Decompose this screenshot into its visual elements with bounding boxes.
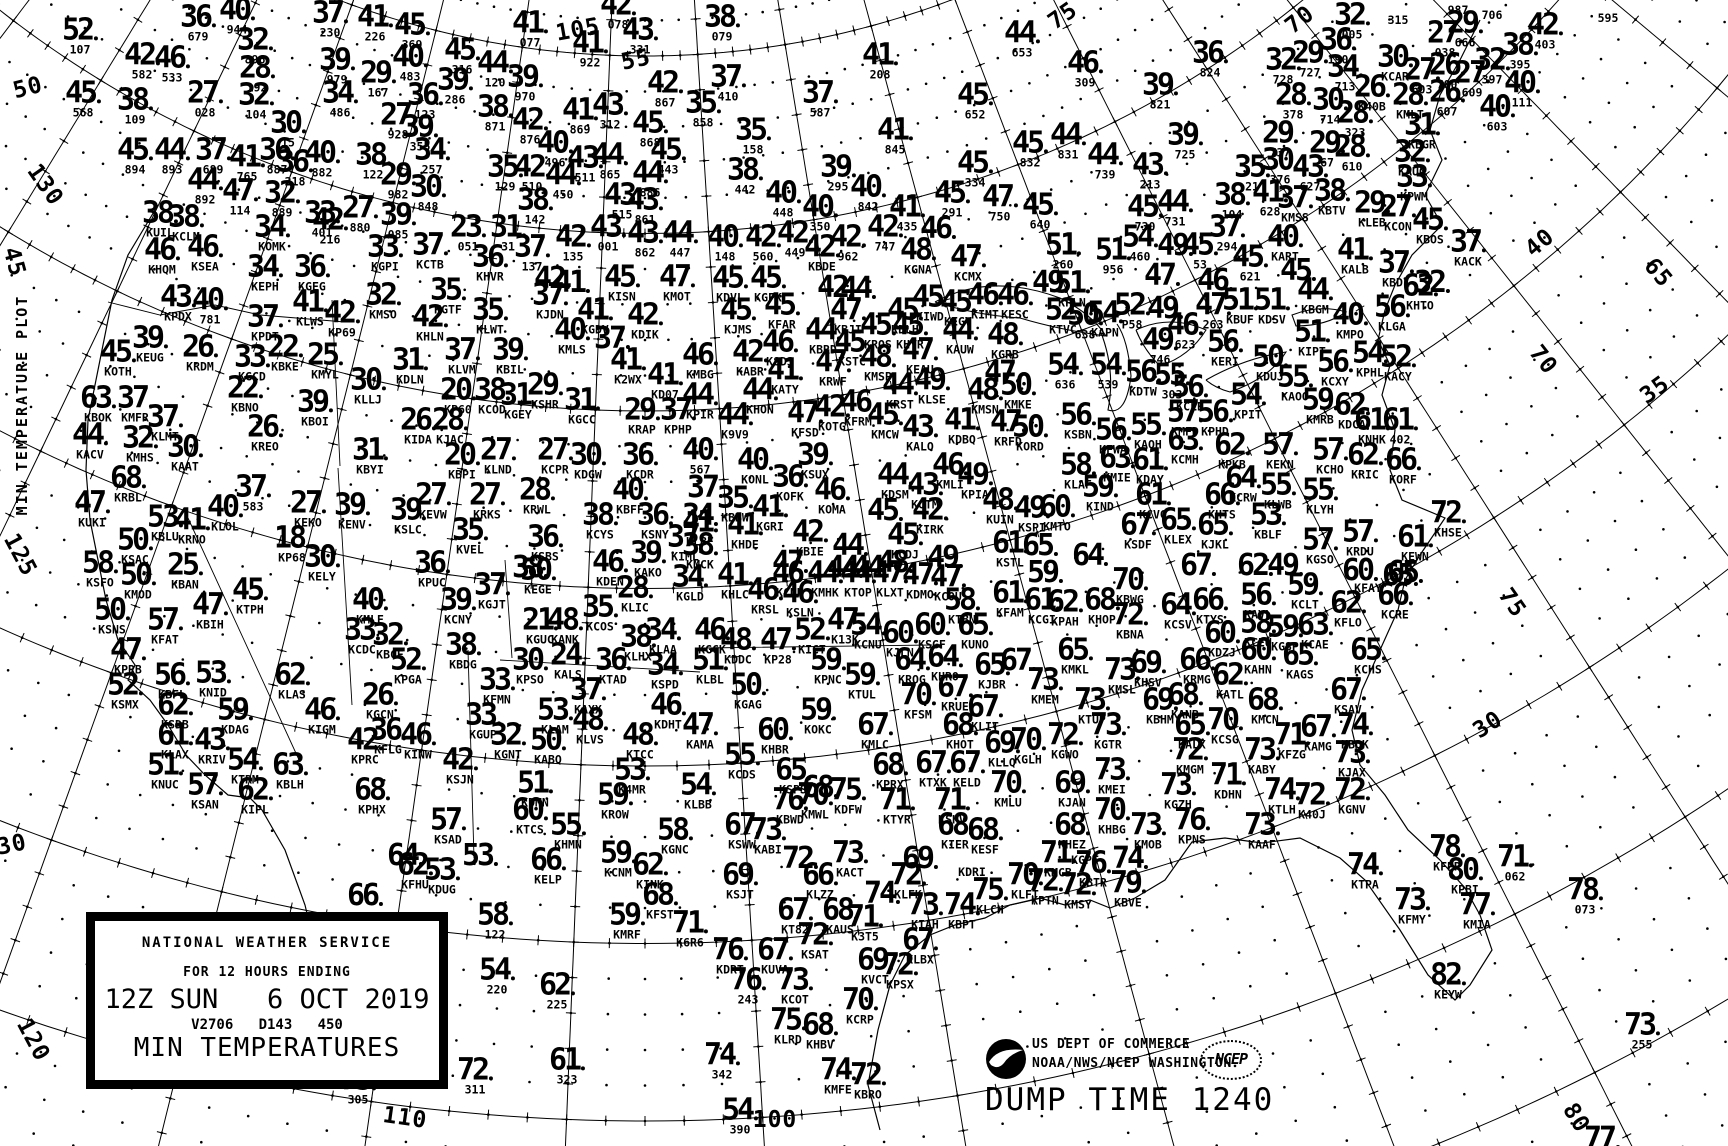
station-marker-dot — [189, 711, 193, 715]
station-marker-dot — [1086, 289, 1090, 293]
station: 38109 — [117, 88, 153, 124]
station: 58122 — [477, 903, 513, 939]
station-temp: 53 — [462, 838, 492, 873]
station: 46309 — [1067, 51, 1103, 87]
station: 62KIPL — [237, 778, 273, 814]
station-marker-dot — [1462, 519, 1466, 523]
station-id: KCDS — [724, 770, 760, 779]
station: 51KDSV — [1254, 288, 1290, 324]
station-marker-dot — [1559, 31, 1563, 35]
station-id: KPRC — [347, 755, 383, 764]
station-marker-dot — [654, 741, 658, 745]
station: 65KAGS — [1282, 643, 1318, 679]
station: 41KRNO — [174, 508, 210, 544]
station-marker-dot — [1162, 669, 1166, 673]
station-id: KTCS — [512, 825, 548, 834]
station-id: KHQM — [144, 265, 180, 274]
station-marker-dot — [862, 796, 866, 800]
station-marker-dot — [552, 576, 556, 580]
station-marker-dot — [389, 23, 393, 27]
station: 32KMSO — [365, 283, 401, 319]
station: 43KPDX — [160, 285, 196, 321]
station-marker-dot — [736, 23, 740, 27]
station-marker-dot — [522, 741, 526, 745]
station: 49KLSE — [914, 368, 950, 404]
station: 40KLOL — [207, 495, 243, 531]
station-marker-dot — [1142, 889, 1146, 893]
station: 45621 — [1232, 245, 1268, 281]
station-marker-dot — [577, 181, 581, 185]
station-id: KLGA — [1374, 322, 1410, 331]
station-marker-dot — [1286, 306, 1290, 310]
station-marker-dot — [1204, 756, 1208, 760]
station-marker-dot — [582, 661, 586, 665]
station-id: KMRB — [1302, 415, 1338, 424]
station-id: KGSO — [1302, 555, 1338, 564]
station: 45KMCW — [867, 403, 903, 439]
station: 54636 — [1047, 353, 1083, 389]
station-marker-dot — [426, 31, 430, 35]
station-marker-dot — [1144, 865, 1148, 869]
station-marker-dot — [384, 456, 388, 460]
station-marker-dot — [1362, 609, 1366, 613]
info-box-period: FOR 12 HOURS ENDING — [95, 965, 439, 980]
station-marker-dot — [1276, 831, 1280, 835]
station: 39KBOI — [297, 390, 333, 426]
station-marker-dot — [186, 681, 190, 685]
station-marker-dot — [149, 156, 153, 160]
station: 79KBVE — [1110, 871, 1146, 907]
station-marker-dot — [724, 666, 728, 670]
station-id: KDBQ — [944, 435, 980, 444]
station-id: K9V9 — [717, 430, 753, 439]
station: 26KRDM — [182, 335, 218, 371]
station: 57KSAN — [187, 773, 223, 809]
station-marker-dot — [717, 109, 721, 113]
station: 67KAMG — [1300, 715, 1336, 751]
station-marker-dot — [1386, 93, 1390, 97]
station-marker-dot — [1071, 513, 1075, 517]
station: KDRI — [958, 868, 986, 877]
station: 42747 — [867, 215, 903, 251]
station-id: KPSO — [512, 675, 548, 684]
station-marker-dot — [97, 99, 101, 103]
station-marker-dot — [756, 761, 760, 765]
station: 72KPTN — [1027, 869, 1063, 905]
station-marker-dot — [279, 273, 283, 277]
station-id: KPIR — [682, 410, 718, 419]
station-marker-dot — [1294, 451, 1298, 455]
station-marker-dot — [829, 461, 833, 465]
station-marker-dot — [944, 516, 948, 520]
noaa-logo — [985, 1038, 1027, 1084]
station-marker-dot — [989, 631, 993, 635]
station: 29167 — [360, 61, 396, 97]
station-id: KEYW — [1430, 990, 1466, 999]
station: 42KDIK — [627, 303, 663, 339]
station-id: KHVR — [472, 272, 508, 281]
station-marker-dot — [982, 263, 986, 267]
station-id: KRSL — [747, 605, 783, 614]
station-marker-dot — [271, 74, 275, 78]
station: 44KPIR — [682, 383, 718, 419]
station-marker-dot — [1199, 331, 1203, 335]
station-id: KMLS — [554, 345, 590, 354]
station: 52KSMX — [107, 673, 143, 709]
station: 315 — [1388, 16, 1409, 25]
station-id: KBRO — [850, 1090, 886, 1099]
station-marker-dot — [1164, 171, 1168, 175]
station-id: KCRP — [842, 1015, 878, 1024]
station-id: KTOP — [840, 588, 876, 597]
station-id: KEPH — [247, 282, 283, 291]
station-marker-dot — [219, 99, 223, 103]
station-id: KGNV — [1334, 805, 1370, 814]
station-id: KGCC — [564, 415, 600, 424]
station: 47KRWF — [815, 350, 851, 386]
station: 25KMYL — [307, 343, 343, 379]
station-marker-dot — [1099, 69, 1103, 73]
station: 40781 — [192, 288, 228, 324]
station-marker-dot — [462, 296, 466, 300]
station: 68KRBL — [110, 466, 146, 502]
station-marker-dot — [544, 816, 548, 820]
station-marker-dot — [1174, 91, 1178, 95]
info-box-agency: NATIONAL WEATHER SERVICE — [95, 935, 439, 951]
station-marker-dot — [797, 199, 801, 203]
station-marker-dot — [714, 551, 718, 555]
station-marker-dot — [1406, 313, 1410, 317]
station: 53KBLF — [1250, 503, 1286, 539]
station-marker-dot — [384, 606, 388, 610]
station-marker-dot — [432, 741, 436, 745]
station-id: KTPA — [1347, 880, 1383, 889]
station-marker-dot — [559, 391, 563, 395]
station-marker-dot — [1246, 201, 1250, 205]
station-id: KORD — [1012, 442, 1048, 451]
station-marker-dot — [876, 681, 880, 685]
station-id: KBDG — [445, 660, 481, 669]
station-marker-dot — [511, 976, 515, 980]
station: 30KLLJ — [350, 368, 386, 404]
station: 75KDFW — [830, 778, 866, 814]
station-marker-dot — [1044, 149, 1048, 153]
station-marker-dot — [641, 921, 645, 925]
station-marker-dot — [444, 323, 448, 327]
station-id: KORF — [1385, 475, 1421, 484]
station-marker-dot — [976, 426, 980, 430]
station: 77KMIA — [1459, 893, 1495, 929]
station-marker-dot — [1079, 741, 1083, 745]
station-marker-dot — [224, 611, 228, 615]
station: 76243 — [730, 968, 766, 1004]
station-marker-dot — [176, 256, 180, 260]
station-marker-dot — [1022, 789, 1026, 793]
station: 40KMLS — [554, 318, 590, 354]
station-marker-dot — [269, 46, 273, 50]
station-id: KEUG — [132, 353, 168, 362]
station: 70KGLH — [1010, 728, 1046, 764]
station-marker-dot — [494, 862, 498, 866]
station-marker-dot — [392, 79, 396, 83]
station: 66KCRE — [1377, 583, 1413, 619]
station: 35KLWT — [472, 298, 508, 334]
station-marker-dot — [524, 356, 528, 360]
station: 46KINW — [400, 723, 436, 759]
station-id: KSHR — [527, 400, 563, 409]
station: 44831 — [1050, 123, 1086, 159]
station-marker-dot — [374, 214, 378, 218]
station-marker-dot — [1272, 656, 1276, 660]
station-marker-dot — [1297, 66, 1301, 70]
station-marker-dot — [1326, 801, 1330, 805]
station-id: KELY — [304, 572, 340, 581]
station-marker-dot — [336, 159, 340, 163]
station-marker-dot — [646, 776, 650, 780]
station: 52KPGA — [390, 648, 426, 684]
info-box-product-title: MIN TEMPERATURES — [95, 1033, 439, 1063]
station-marker-dot — [946, 386, 950, 390]
station-marker-dot — [1369, 256, 1373, 260]
station-marker-dot — [814, 599, 818, 603]
station-marker-dot — [1036, 39, 1040, 43]
station-marker-dot — [1479, 876, 1483, 880]
station-marker-dot — [862, 243, 866, 247]
station-marker-dot — [1511, 113, 1515, 117]
station-marker-dot — [1042, 746, 1046, 750]
station-id: KGNA — [900, 265, 936, 274]
station-marker-dot — [934, 356, 938, 360]
station-id: KCNM — [600, 868, 636, 877]
station-id: KMIA — [1459, 920, 1495, 929]
station-marker-dot — [654, 36, 658, 40]
station: 55KLYH — [1302, 478, 1338, 514]
station-id: KFSM — [900, 710, 936, 719]
station-marker-dot — [339, 361, 343, 365]
station-id: KCSG — [1207, 735, 1243, 744]
station: 64KCSV — [1160, 593, 1196, 629]
station: 54KCNU — [850, 613, 886, 649]
station-id: KRDM — [182, 362, 218, 371]
station-marker-dot — [609, 316, 613, 320]
station-id: KBVE — [1110, 898, 1146, 907]
station-id: KRWL — [519, 505, 555, 514]
station-marker-dot — [752, 646, 756, 650]
station: 77 — [1584, 1127, 1620, 1146]
station: 61323 — [549, 1048, 585, 1084]
station-id: K40J — [1294, 810, 1330, 819]
station-id: KSAN — [187, 800, 223, 809]
station: 44KAUW — [942, 318, 978, 354]
station-marker-dot — [1482, 248, 1486, 252]
station-id: KMCW — [867, 430, 903, 439]
station: 45832 — [1012, 131, 1048, 167]
station-marker-dot — [1224, 606, 1228, 610]
station-id: KAUW — [942, 345, 978, 354]
station: 42962 — [830, 225, 866, 261]
station-marker-dot — [922, 881, 926, 885]
station-marker-dot — [142, 656, 146, 660]
station: 27KEVW — [415, 483, 451, 519]
station-marker-dot — [1412, 363, 1416, 367]
station-id: KHDE — [727, 540, 763, 549]
station-marker-dot — [489, 1076, 493, 1080]
station: 56KCXY — [1317, 350, 1353, 386]
station: 56KLGA — [1374, 295, 1410, 331]
station: 63KCMH — [1167, 428, 1203, 464]
station-id: KLND — [480, 465, 516, 474]
station-marker-dot — [299, 353, 303, 357]
station: 73KMEI — [1094, 758, 1130, 794]
station: 67 — [1180, 554, 1216, 578]
station-marker-dot — [959, 663, 963, 667]
station: 73KCOT — [777, 968, 813, 1004]
station-marker-dot — [829, 801, 833, 805]
station-id: KHLN — [412, 332, 448, 341]
station-id: KENV — [334, 520, 370, 529]
station: 41KLWS — [292, 290, 328, 326]
station-marker-dot — [679, 671, 683, 675]
station-marker-dot — [1086, 789, 1090, 793]
station: 44739 — [1087, 143, 1123, 179]
station: 38871 — [477, 95, 513, 131]
station-marker-dot — [1104, 562, 1108, 566]
station-id: KBYI — [352, 465, 388, 474]
station: 67KSDF — [1120, 513, 1156, 549]
station-marker-dot — [889, 731, 893, 735]
station-marker-dot — [476, 356, 480, 360]
station: 55KCDS — [724, 743, 760, 779]
station-marker-dot — [662, 559, 666, 563]
station: 41845 — [877, 118, 913, 154]
station-marker-dot — [1092, 891, 1096, 895]
station-marker-dot — [397, 301, 401, 305]
station: 74KTPA — [1347, 853, 1383, 889]
station-id: KREO — [247, 442, 283, 451]
station: 73KGTR — [1090, 713, 1126, 749]
station-id: KJBR — [974, 680, 1010, 689]
station-id: KDFW — [830, 805, 866, 814]
station: 39KCNY — [440, 588, 476, 624]
station-id: KUIN — [982, 515, 1018, 524]
station: 71062 — [1497, 845, 1533, 881]
station: 44893 — [154, 138, 190, 174]
station-marker-dot — [549, 206, 553, 210]
station-id: 595 — [1598, 14, 1619, 23]
station: 74342 — [704, 1043, 740, 1079]
station-marker-dot — [832, 716, 836, 720]
station-marker-dot — [622, 233, 626, 237]
station-marker-dot — [1239, 726, 1243, 730]
station-marker-dot — [1334, 546, 1338, 550]
station-marker-dot — [477, 651, 481, 655]
station: 32104 — [238, 83, 274, 119]
station-marker-dot — [1461, 853, 1465, 857]
station: 45652 — [957, 83, 993, 119]
station: 45894 — [117, 138, 153, 174]
station-marker-dot — [379, 746, 383, 750]
station-marker-dot — [1119, 161, 1123, 165]
station-marker-dot — [1414, 426, 1418, 430]
station-marker-dot — [834, 1031, 838, 1035]
station: 38KBDG — [445, 633, 481, 669]
station: 73255 — [1624, 1013, 1660, 1049]
station-id: KCTB — [412, 260, 448, 269]
station: 72KHSE — [1430, 501, 1466, 537]
station-marker-dot — [1164, 466, 1168, 470]
station-marker-dot — [1529, 863, 1533, 867]
station-marker-dot — [447, 501, 451, 505]
station-marker-dot — [304, 771, 308, 775]
station: 44731 — [1157, 190, 1193, 226]
station-id: K3T5 — [847, 932, 883, 941]
station-marker-dot — [834, 213, 838, 217]
station-marker-dot — [422, 666, 426, 670]
station: 54539 — [1090, 353, 1126, 389]
station: 40882 — [304, 141, 340, 177]
station-id: KCOS — [582, 622, 618, 631]
station-marker-dot — [1426, 158, 1430, 162]
station: 48KGNA — [900, 238, 936, 274]
station-marker-dot — [1086, 831, 1090, 835]
station-marker-dot — [1382, 656, 1386, 660]
station-id: KBTV — [1314, 206, 1350, 215]
station-id: KACY — [1380, 372, 1416, 381]
station-marker-dot — [1126, 776, 1130, 780]
station-marker-dot — [934, 865, 938, 869]
station-marker-dot — [809, 986, 813, 990]
station: 987 — [1448, 6, 1469, 15]
station: 42560 — [745, 225, 781, 261]
station: 71K6R6 — [672, 911, 708, 947]
station: 47KCMX — [950, 245, 986, 281]
station-marker-dot — [1461, 98, 1465, 102]
station: 44KTOP — [840, 561, 876, 597]
station: 39725 — [1167, 123, 1203, 159]
station-marker-dot — [1162, 431, 1166, 435]
station-temp: 67 — [1180, 548, 1210, 583]
station-marker-dot — [712, 791, 716, 795]
station-marker-dot — [1436, 131, 1440, 135]
station: 70KCRP — [842, 988, 878, 1024]
station-id: KMYL — [307, 370, 343, 379]
station-marker-dot — [1417, 466, 1421, 470]
station: 46KMBG — [682, 343, 718, 379]
station-id: KLEX — [1160, 535, 1196, 544]
station-marker-dot — [629, 801, 633, 805]
station-marker-dot — [1491, 911, 1495, 915]
station-id: KPSX — [882, 980, 918, 989]
station-id: KMSO — [365, 310, 401, 319]
station: 33KGPI — [367, 235, 403, 271]
station-marker-dot — [1429, 543, 1433, 547]
station: 26KIDA — [400, 408, 436, 444]
station-id: KLWS — [292, 317, 328, 326]
station: 46KIGM — [304, 698, 340, 734]
station-marker-dot — [1334, 496, 1338, 500]
station-id: 987 — [1448, 6, 1469, 15]
station: 63KBLH — [272, 753, 308, 789]
station-id: KGLH — [1010, 755, 1046, 764]
station-marker-dot — [1446, 289, 1450, 293]
station-id: KAAT — [167, 462, 203, 471]
station-marker-dot — [344, 19, 348, 23]
station: 56KERI — [1207, 330, 1243, 366]
station-marker-dot — [847, 368, 851, 372]
station-marker-dot — [199, 453, 203, 457]
station-marker-dot — [1029, 301, 1033, 305]
station-marker-dot — [219, 791, 223, 795]
